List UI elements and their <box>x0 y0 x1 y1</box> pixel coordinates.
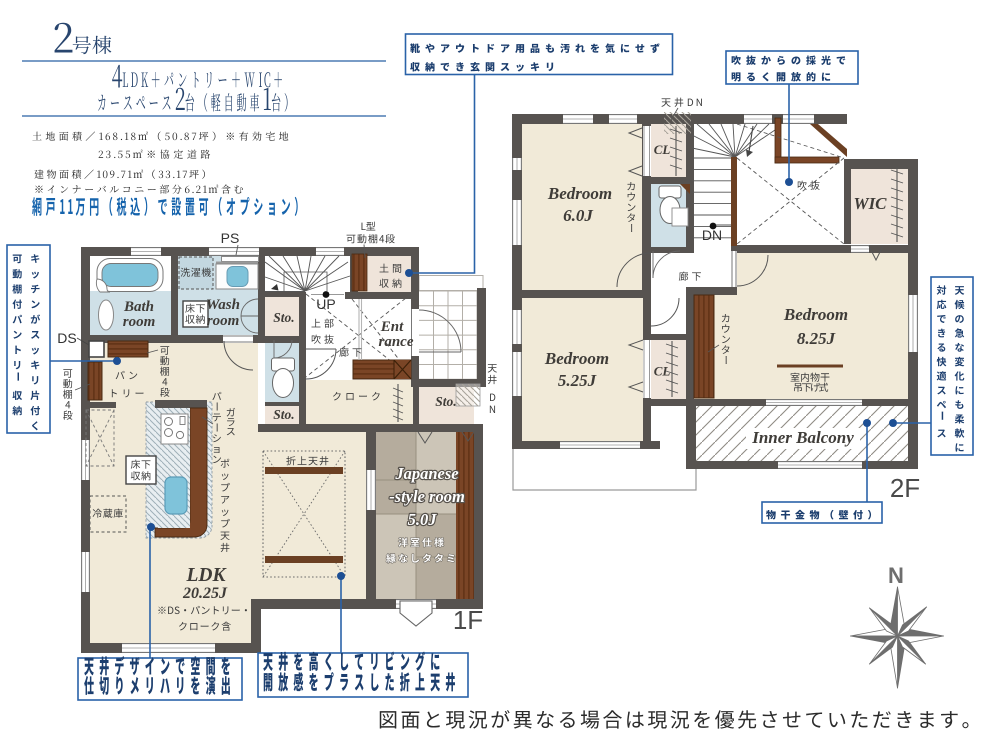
svg-text:Bedroom: Bedroom <box>783 305 848 324</box>
svg-text:LDK: LDK <box>186 565 228 586</box>
svg-text:DS: DS <box>57 330 76 346</box>
svg-text:6.0J: 6.0J <box>563 206 593 225</box>
svg-text:PS: PS <box>221 230 240 246</box>
svg-text:Wash: Wash <box>206 297 240 313</box>
svg-text:Bath: Bath <box>123 299 154 315</box>
svg-text:8.25J: 8.25J <box>797 329 836 348</box>
svg-text:Bedroom: Bedroom <box>544 349 609 368</box>
svg-text:1F: 1F <box>453 605 483 635</box>
svg-text:rance: rance <box>379 334 414 350</box>
svg-text:Bedroom: Bedroom <box>547 184 612 203</box>
svg-text:N: N <box>888 563 904 588</box>
svg-text:Sto.: Sto. <box>273 407 294 422</box>
svg-text:Sto.: Sto. <box>435 394 456 409</box>
svg-text:room: room <box>207 313 240 329</box>
svg-text:room: room <box>123 314 156 330</box>
svg-text:2F: 2F <box>890 473 920 503</box>
svg-text:WIC: WIC <box>853 194 887 213</box>
svg-text:DN: DN <box>702 227 722 243</box>
svg-text:UP: UP <box>316 296 335 312</box>
svg-text:5.0J: 5.0J <box>408 510 438 529</box>
svg-text:CL: CL <box>654 364 671 379</box>
svg-text:20.25J: 20.25J <box>182 585 228 602</box>
svg-text:5.25J: 5.25J <box>558 371 597 390</box>
svg-text:Japanese: Japanese <box>394 464 458 483</box>
svg-text:Ent: Ent <box>380 319 404 335</box>
svg-text:Inner Balcony: Inner Balcony <box>751 428 854 447</box>
svg-text:Sto.: Sto. <box>273 310 294 325</box>
svg-text:-style room: -style room <box>389 487 465 506</box>
svg-text:CL: CL <box>654 142 671 157</box>
